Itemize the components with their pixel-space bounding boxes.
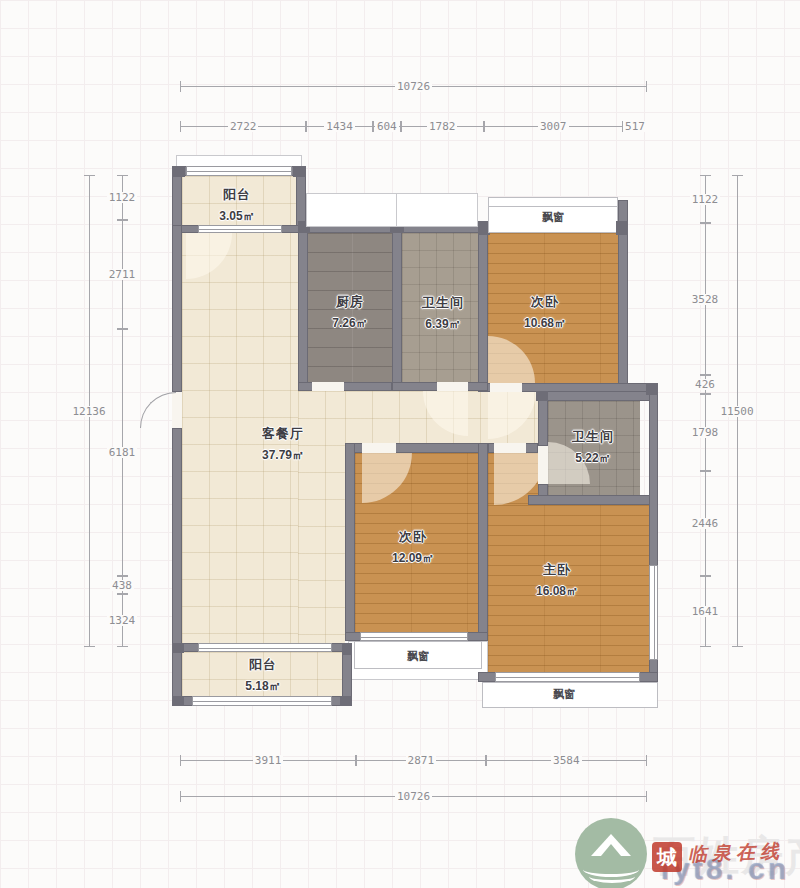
door-opening-bedroom-mid <box>362 443 396 453</box>
dimension-segment: 1782 <box>401 118 484 134</box>
dimension-segment: 6181 <box>114 329 130 577</box>
wall <box>345 443 355 641</box>
room-label-living: 客餐厅 37.79㎡ <box>238 427 328 461</box>
dim-bottom-overall: 10726 <box>180 788 647 804</box>
floorplan-canvas: 10726 2722143460417823007517 39112871358… <box>0 0 800 888</box>
bay-window-top-line <box>488 206 618 207</box>
dimension-segment: 1798 <box>697 394 713 471</box>
sliding-door-balcony-bottom <box>198 643 332 652</box>
room-label-kitchen: 厨房 7.26㎡ <box>305 295 395 329</box>
dimension-segment: 2711 <box>114 220 130 329</box>
dimension-segment: 2871 <box>356 752 485 768</box>
dimension-segment: 426 <box>697 375 713 393</box>
window-balcony-bottom <box>192 696 332 706</box>
dim-top-overall: 10726 <box>180 78 647 94</box>
dim-top-segments: 2722143460417823007517 <box>180 118 647 134</box>
dimension-segment: 604 <box>373 118 401 134</box>
dim-left-segments: 1122271161814381324 <box>114 175 130 647</box>
dimension-segment: 10726 <box>180 78 647 94</box>
dimension-segment: 12136 <box>81 175 97 647</box>
wall <box>528 495 658 505</box>
wall-corner <box>536 391 548 401</box>
dimension-segment: 11500 <box>729 175 745 647</box>
room-label-bath-mid: 卫生间 5.22㎡ <box>548 430 638 464</box>
window-master <box>649 565 658 660</box>
entry-door-arc <box>140 392 176 428</box>
logo-roof-inner <box>601 844 621 856</box>
wall-corner <box>172 166 185 177</box>
ledge-divider <box>396 193 397 227</box>
dimension-segment: 3007 <box>484 118 624 134</box>
window-master-bottom <box>495 672 640 682</box>
dimension-segment: 3528 <box>697 223 713 375</box>
dimension-segment: 2722 <box>180 118 306 134</box>
exterior-ledge <box>306 193 478 227</box>
dimension-segment: 3911 <box>180 752 356 768</box>
brand-logo-icon <box>575 818 647 888</box>
wall <box>172 225 182 392</box>
room-label-bedroom-mid: 次卧 12.09㎡ <box>368 530 458 564</box>
dimension-segment: 1122 <box>697 175 713 223</box>
window-living-balcony <box>198 225 282 233</box>
wall-corner <box>293 166 306 177</box>
room-label-balcony-bottom: 阳台 5.18㎡ <box>218 658 308 692</box>
bay-label-top: 飘窗 <box>542 210 564 225</box>
watermark-stamp-icon: 城 <box>652 842 682 872</box>
bay-label-bottom: 飘窗 <box>553 687 575 702</box>
dimension-segment: 1434 <box>306 118 373 134</box>
dimension-segment: 438 <box>114 576 130 594</box>
dim-left-overall: 12136 <box>81 175 97 647</box>
wall-corner <box>172 643 184 653</box>
dimension-segment: 1122 <box>114 175 130 220</box>
room-label-balcony-top: 阳台 3.05㎡ <box>192 188 282 222</box>
door-opening-bedroom-top <box>490 383 522 392</box>
room-label-bath-top: 卫生间 6.39㎡ <box>398 296 488 330</box>
dim-bottom-segments: 391128713584 <box>180 752 647 768</box>
wall-corner <box>172 696 184 706</box>
window-balcony-top <box>186 166 292 176</box>
logo-wave-shape2 <box>589 870 635 883</box>
room-label-master: 主卧 16.08㎡ <box>512 563 602 597</box>
dimension-segment: 3584 <box>486 752 647 768</box>
dimension-segment: 1641 <box>697 576 713 647</box>
door-opening-bath-mid <box>538 446 548 484</box>
dim-right-overall: 11500 <box>729 175 745 647</box>
wall-corner <box>342 643 352 655</box>
wall <box>536 391 658 401</box>
wall-corner <box>340 696 352 706</box>
door-opening-bath-top <box>437 382 468 391</box>
wall-corner <box>616 221 628 235</box>
wall <box>172 428 182 652</box>
door-opening-master <box>494 443 526 453</box>
dimension-segment: 2446 <box>697 471 713 576</box>
dimension-segment: 10726 <box>180 788 647 804</box>
dim-right-segments: 11223528426179824461641 <box>697 175 713 647</box>
window-bedroom-mid <box>360 632 468 641</box>
bay-label-mid: 飘窗 <box>407 649 429 664</box>
door-opening-kitchen <box>312 382 344 391</box>
room-label-bedroom-top: 次卧 10.68㎡ <box>500 295 590 329</box>
dimension-segment: 1324 <box>114 594 130 647</box>
dimension-segment: 517 <box>623 118 647 134</box>
wall-corner <box>646 383 658 395</box>
watermark-site-name: 临泉在线 <box>688 838 785 867</box>
